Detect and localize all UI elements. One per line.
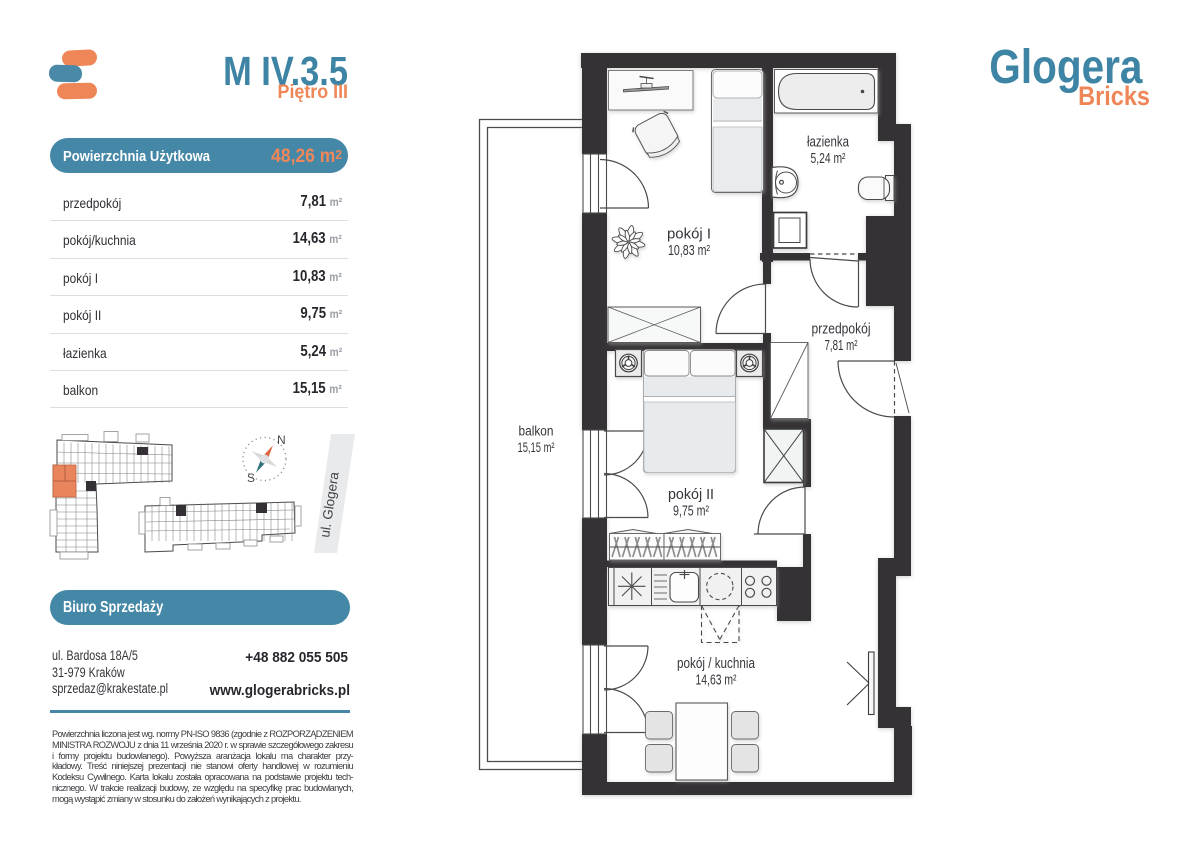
svg-text:14,63 m²: 14,63 m² <box>696 673 737 689</box>
svg-text:9,75 m²: 9,75 m² <box>673 504 709 520</box>
svg-text:pokój II: pokój II <box>668 487 714 503</box>
svg-text:przedpokój: przedpokój <box>812 322 871 338</box>
svg-text:S: S <box>247 471 255 485</box>
svg-text:balkon: balkon <box>519 424 554 439</box>
svg-text:N: N <box>277 433 286 447</box>
svg-text:pokój I: pokój I <box>667 227 711 243</box>
svg-text:15,15 m²: 15,15 m² <box>518 440 555 455</box>
svg-text:5,24 m²: 5,24 m² <box>811 151 846 167</box>
svg-text:10,83 m²: 10,83 m² <box>668 243 710 259</box>
svg-text:7,81 m²: 7,81 m² <box>825 338 858 354</box>
svg-text:pokój / kuchnia: pokój / kuchnia <box>677 656 756 672</box>
svg-text:łazienka: łazienka <box>807 135 850 151</box>
